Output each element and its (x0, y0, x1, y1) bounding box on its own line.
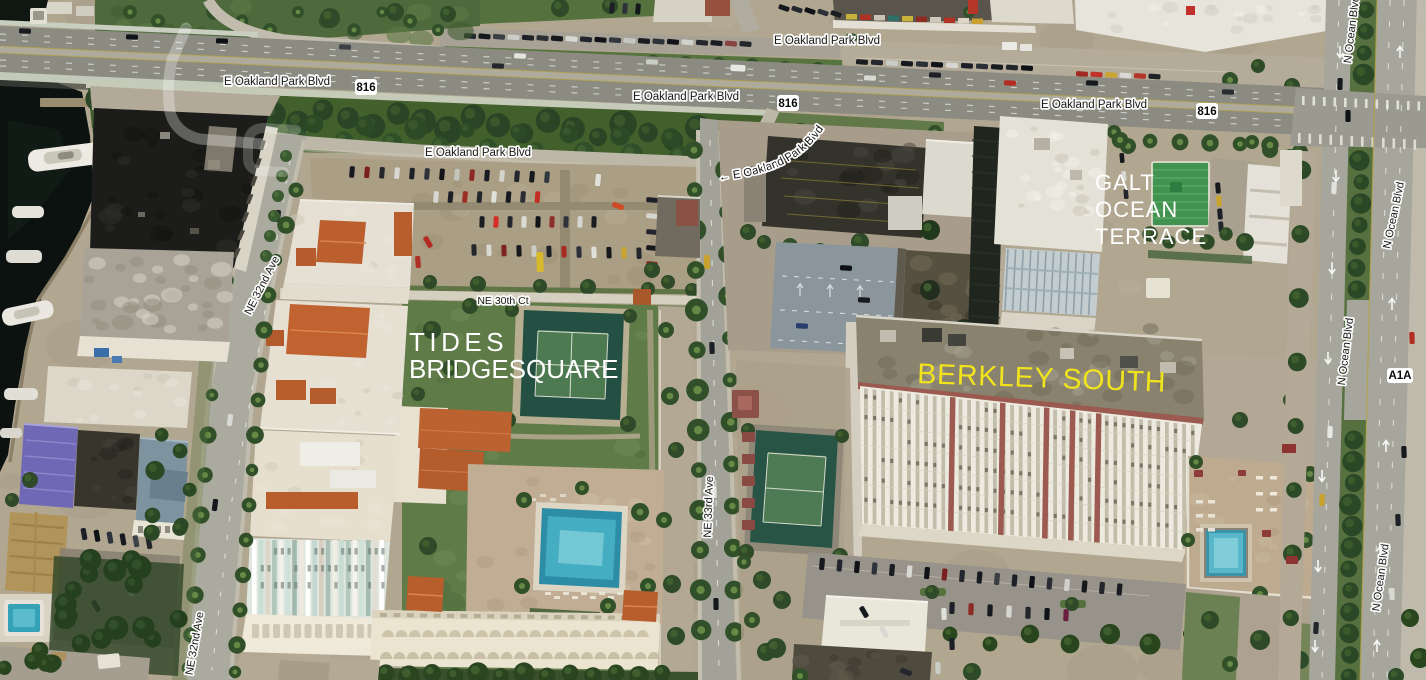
svg-text:NE 30th Ct: NE 30th Ct (477, 295, 528, 307)
svg-text:TIDES: TIDES (409, 327, 508, 357)
svg-text:816: 816 (356, 82, 375, 94)
svg-text:E Oakland Park Blvd: E Oakland Park Blvd (425, 147, 531, 159)
svg-text:OCEAN: OCEAN (1095, 197, 1178, 222)
svg-text:BRIDGESQUARE: BRIDGESQUARE (409, 354, 619, 384)
svg-text:GALT: GALT (1095, 170, 1155, 195)
svg-text:E Oakland Park Blvd: E Oakland Park Blvd (224, 76, 330, 88)
svg-text:816: 816 (778, 98, 797, 110)
svg-text:816: 816 (1197, 106, 1216, 118)
svg-text:NE 33rd Ave: NE 33rd Ave (702, 476, 716, 538)
svg-text:A1A: A1A (1388, 370, 1411, 382)
svg-text:E Oakland Park Blvd: E Oakland Park Blvd (1041, 99, 1147, 111)
svg-text:E Oakland Park Blvd: E Oakland Park Blvd (774, 35, 880, 47)
svg-text:TERRACE: TERRACE (1095, 224, 1207, 249)
svg-text:E Oakland Park Blvd: E Oakland Park Blvd (633, 91, 739, 103)
